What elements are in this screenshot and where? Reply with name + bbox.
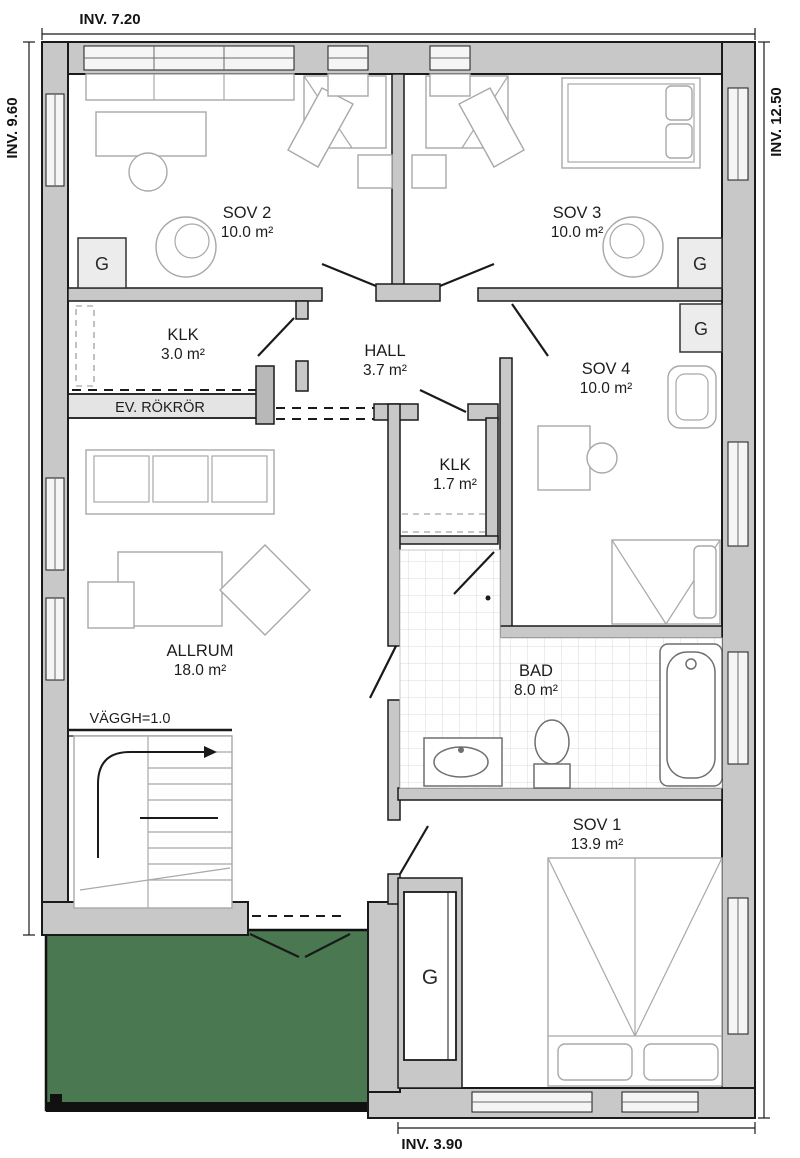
g-label-sov3: G bbox=[693, 254, 707, 274]
room-area-sov3: 10.0 m² bbox=[551, 224, 604, 241]
room-area-bad: 8.0 m² bbox=[514, 682, 558, 699]
allrum-furniture bbox=[86, 450, 310, 635]
dim-top: INV. 7.20 bbox=[79, 11, 140, 28]
wall-height-label: VÄGGH=1.0 bbox=[90, 710, 171, 727]
room-area-klk2: 1.7 m² bbox=[433, 476, 477, 493]
room-area-allrum: 18.0 m² bbox=[174, 662, 227, 679]
room-label-allrum: ALLRUM bbox=[167, 642, 234, 660]
room-area-hall: 3.7 m² bbox=[363, 362, 407, 379]
g-label-sov4: G bbox=[694, 319, 708, 339]
room-area-sov1: 13.9 m² bbox=[571, 836, 624, 853]
floor-plan-page: SOV 2 10.0 m² SOV 3 10.0 m² KLK 3.0 m² H… bbox=[0, 0, 800, 1158]
room-area-sov4: 10.0 m² bbox=[580, 380, 633, 397]
dim-left: INV. 9.60 bbox=[4, 97, 21, 158]
room-label-sov1: SOV 1 bbox=[573, 816, 622, 834]
dim-right: INV. 12.50 bbox=[768, 87, 785, 157]
room-label-hall: HALL bbox=[364, 342, 405, 360]
room-label-klk2: KLK bbox=[439, 456, 470, 474]
g-label-sov2: G bbox=[95, 254, 109, 274]
room-label-sov4: SOV 4 bbox=[582, 360, 631, 378]
sov3-furniture bbox=[412, 74, 700, 277]
sov1-furniture bbox=[398, 858, 722, 1088]
room-area-sov2: 10.0 m² bbox=[221, 224, 274, 241]
flue-label: EV. RÖKRÖR bbox=[115, 398, 205, 416]
dim-bottom: INV. 3.90 bbox=[401, 1136, 462, 1153]
toilet bbox=[535, 720, 569, 764]
room-label-bad: BAD bbox=[519, 662, 553, 680]
room-label-klk1: KLK bbox=[167, 326, 198, 344]
room-label-sov2: SOV 2 bbox=[223, 204, 272, 222]
terrace bbox=[46, 930, 370, 1112]
g-label-sov1: G bbox=[422, 966, 438, 989]
room-label-sov3: SOV 3 bbox=[553, 204, 602, 222]
sov2-furniture bbox=[86, 74, 392, 277]
sov4-furniture bbox=[538, 366, 720, 624]
stair bbox=[68, 730, 232, 908]
floor-plan-drawing: SOV 2 10.0 m² SOV 3 10.0 m² KLK 3.0 m² H… bbox=[0, 0, 800, 1158]
room-area-klk1: 3.0 m² bbox=[161, 346, 205, 363]
